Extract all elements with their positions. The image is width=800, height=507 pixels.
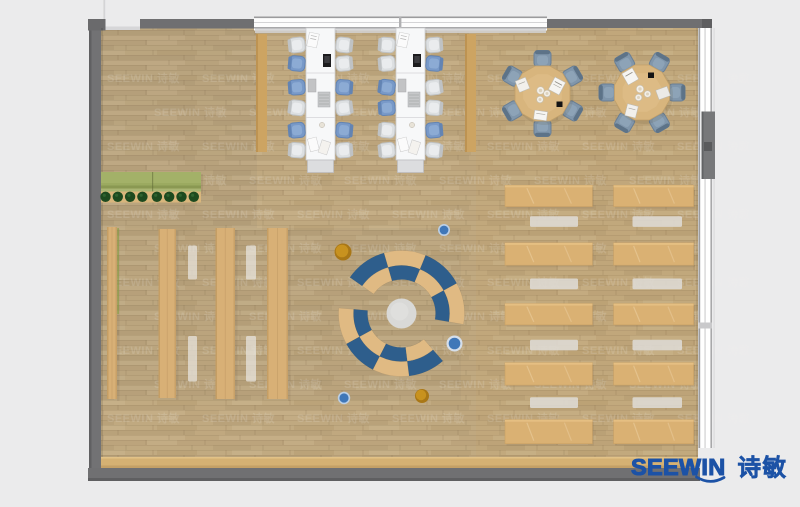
svg-text:诗敏: 诗敏 — [738, 455, 788, 481]
svg-text:SEEWIN 诗敏: SEEWIN 诗敏 — [107, 411, 180, 425]
svg-text:SEEWIN 诗敏: SEEWIN 诗敏 — [297, 207, 370, 221]
svg-text:SEEWIN 诗敏: SEEWIN 诗敏 — [534, 173, 607, 187]
svg-text:SEEWIN 诗敏: SEEWIN 诗敏 — [439, 173, 512, 187]
svg-text:SEEWIN 诗敏: SEEWIN 诗敏 — [439, 377, 512, 391]
svg-text:SEEWIN 诗敏: SEEWIN 诗敏 — [629, 173, 702, 187]
svg-text:SEEWIN 诗敏: SEEWIN 诗敏 — [107, 71, 180, 85]
svg-text:SEEWIN 诗敏: SEEWIN 诗敏 — [392, 207, 465, 221]
svg-text:SEEWIN 诗敏: SEEWIN 诗敏 — [107, 207, 180, 221]
svg-text:SEEWIN 诗敏: SEEWIN 诗敏 — [392, 411, 465, 425]
svg-text:SEEWIN: SEEWIN — [631, 454, 726, 480]
svg-text:SEEWIN 诗敏: SEEWIN 诗敏 — [202, 275, 275, 289]
svg-text:SEEWIN 诗敏: SEEWIN 诗敏 — [439, 241, 512, 255]
svg-text:SEEWIN 诗敏: SEEWIN 诗敏 — [202, 343, 275, 357]
svg-text:SEEWIN 诗敏: SEEWIN 诗敏 — [107, 139, 180, 153]
svg-text:SEEWIN 诗敏: SEEWIN 诗敏 — [202, 207, 275, 221]
svg-text:SEEWIN 诗敏: SEEWIN 诗敏 — [344, 377, 417, 391]
svg-text:SEEWIN 诗敏: SEEWIN 诗敏 — [297, 411, 370, 425]
svg-text:SEEWIN 诗敏: SEEWIN 诗敏 — [487, 139, 560, 153]
svg-text:SEEWIN 诗敏: SEEWIN 诗敏 — [154, 105, 227, 119]
svg-text:SEEWIN 诗敏: SEEWIN 诗敏 — [249, 173, 322, 187]
svg-text:SEEWIN 诗敏: SEEWIN 诗敏 — [582, 139, 655, 153]
svg-text:SEEWIN 诗敏: SEEWIN 诗敏 — [344, 173, 417, 187]
svg-text:SEEWIN 诗敏: SEEWIN 诗敏 — [202, 411, 275, 425]
